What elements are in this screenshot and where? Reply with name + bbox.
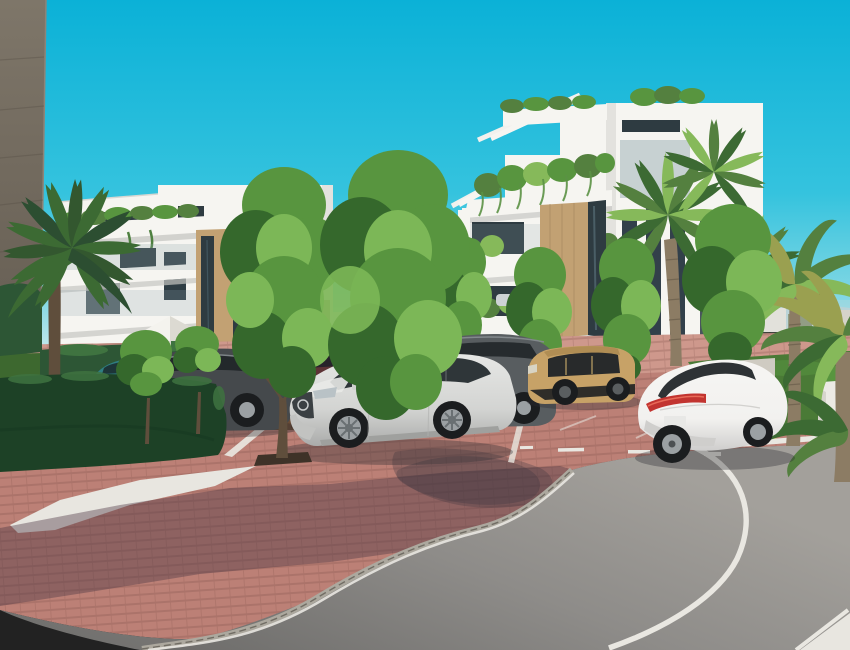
suv-front-wheel	[329, 408, 369, 448]
suv-rear-wheel	[433, 401, 471, 439]
rooftop-plants	[630, 86, 705, 106]
window	[622, 120, 680, 132]
tan-crossover-suv	[527, 346, 643, 410]
glass-balustrade	[60, 290, 210, 316]
render-canvas	[0, 0, 850, 650]
tan-suv-glass	[548, 353, 620, 377]
scene	[0, 0, 850, 650]
boxwood-hedge-foreground	[0, 371, 227, 472]
